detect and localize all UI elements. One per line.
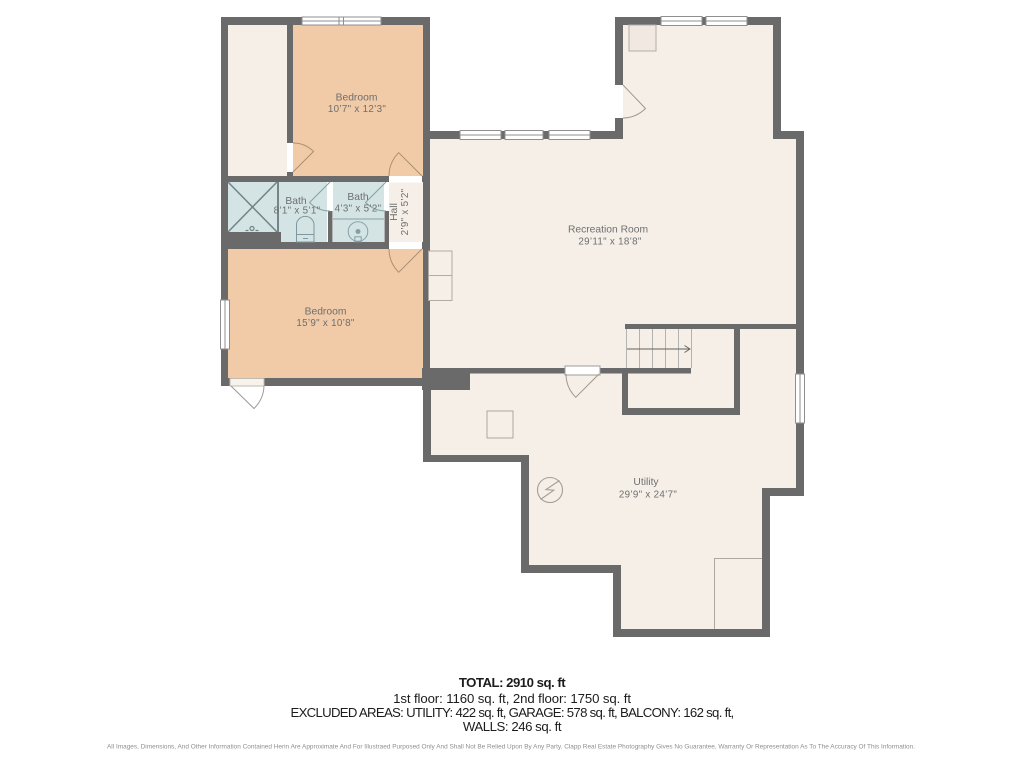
svg-text:WALLS: 246 sq. ft: WALLS: 246 sq. ft [463, 719, 562, 734]
svg-text:All Images, Dimensions, And Ot: All Images, Dimensions, And Other Inform… [107, 744, 915, 751]
svg-text:Recreation Room: Recreation Room [568, 225, 648, 236]
svg-text:2’9" x 5’2": 2’9" x 5’2" [400, 188, 411, 235]
svg-text:4’3" x 5’2": 4’3" x 5’2" [335, 204, 382, 215]
svg-text:Hall: Hall [389, 203, 400, 221]
svg-text:TOTAL: 2910 sq. ft: TOTAL: 2910 sq. ft [459, 675, 566, 690]
svg-text:EXCLUDED AREAS: UTILITY: 422 s: EXCLUDED AREAS: UTILITY: 422 sq. ft, GAR… [290, 705, 733, 720]
svg-text:8’1" x 5’1": 8’1" x 5’1" [274, 206, 321, 217]
svg-text:29’11" x 18’8": 29’11" x 18’8" [578, 237, 641, 248]
svg-text:15’9" x 10’8": 15’9" x 10’8" [296, 318, 354, 329]
svg-text:29’9" x 24’7": 29’9" x 24’7" [619, 490, 677, 501]
svg-text:10’7" x 12’3": 10’7" x 12’3" [328, 104, 386, 115]
svg-text:Utility: Utility [633, 477, 659, 488]
svg-text:Bedroom: Bedroom [336, 93, 378, 104]
svg-text:Bath: Bath [347, 192, 368, 203]
svg-text:1st floor: 1160 sq. ft, 2nd fl: 1st floor: 1160 sq. ft, 2nd floor: 1750 … [393, 691, 631, 706]
svg-text:Bedroom: Bedroom [305, 307, 347, 318]
